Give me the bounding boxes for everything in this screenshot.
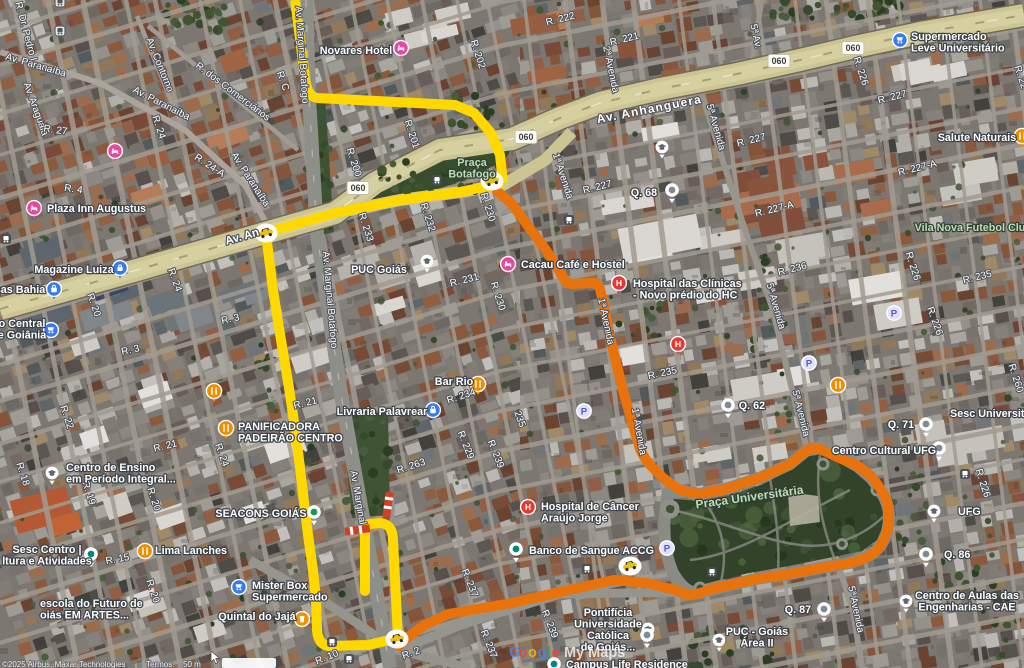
svg-text:o: o	[528, 645, 537, 661]
svg-text:PUC Goiás: PUC Goiás	[351, 264, 407, 276]
svg-text:H: H	[616, 278, 622, 288]
svg-text:Quintal do Jajá: Quintal do Jajá	[218, 611, 296, 623]
svg-text:Plaza Inn Augustus: Plaza Inn Augustus	[47, 203, 146, 215]
svg-text:Vila Nova Futebol Clu: Vila Nova Futebol Clu	[915, 222, 1024, 234]
svg-text:P: P	[581, 406, 588, 417]
svg-text:Q. 87: Q. 87	[785, 604, 811, 616]
svg-text:Lima Lanches: Lima Lanches	[155, 545, 227, 557]
svg-text:P: P	[806, 358, 813, 369]
svg-text:Bar Rio: Bar Rio	[435, 376, 474, 388]
svg-text:Centro Cultural UFG: Centro Cultural UFG	[832, 445, 936, 457]
svg-text:Área II: Área II	[740, 637, 773, 650]
svg-text:UFG: UFG	[958, 506, 981, 518]
svg-text:Centro de Aulas das: Centro de Aulas das	[915, 590, 1019, 602]
svg-text:l: l	[547, 645, 551, 661]
svg-text:060: 060	[351, 183, 366, 193]
svg-text:Engenharias - CAE: Engenharias - CAE	[918, 602, 1015, 614]
svg-text:Católica: Católica	[587, 630, 630, 642]
svg-text:Magazine Luiza: Magazine Luiza	[34, 264, 114, 276]
svg-text:©2025 Airbus, Maxar Technologi: ©2025 Airbus, Maxar Technologies	[2, 660, 126, 668]
svg-text:o: o	[519, 645, 528, 661]
svg-text:Q. 86: Q. 86	[944, 549, 970, 561]
svg-text:sas Bahia: sas Bahia	[0, 284, 46, 296]
svg-text:Banco de Sangue ACCG: Banco de Sangue ACCG	[529, 545, 654, 557]
svg-text:Q. 68: Q. 68	[631, 187, 657, 199]
svg-text:o Central: o Central	[0, 318, 45, 330]
svg-text:Supermercado: Supermercado	[911, 31, 987, 43]
svg-text:Botafogo: Botafogo	[448, 169, 496, 181]
svg-text:e Goiânia: e Goiânia	[0, 330, 47, 342]
svg-text:em Período Integral...: em Período Integral...	[66, 474, 176, 486]
svg-text:Sesc Centro |: Sesc Centro |	[12, 544, 81, 556]
svg-text:Praça: Praça	[457, 157, 487, 169]
svg-text:060: 060	[519, 132, 534, 142]
svg-text:Hospital das Clínicas: Hospital das Clínicas	[633, 278, 742, 290]
svg-text:Universidade: Universidade	[574, 619, 642, 631]
svg-text:Salute Naturais: Salute Naturais	[938, 132, 1017, 144]
svg-text:060: 060	[846, 43, 861, 53]
svg-text:H: H	[675, 339, 681, 349]
svg-text:P: P	[891, 308, 898, 319]
svg-text:Q. 71: Q. 71	[888, 419, 914, 431]
svg-text:Hospital de Câncer: Hospital de Câncer	[541, 501, 640, 513]
svg-text:50 m: 50 m	[183, 660, 201, 668]
svg-text:- Novo prédio do HC: - Novo prédio do HC	[633, 290, 738, 302]
svg-text:escola do Futuro de: escola do Futuro de	[40, 598, 143, 610]
svg-text:e: e	[552, 645, 560, 661]
svg-text:Sesc Universitár: Sesc Universitár	[950, 408, 1024, 420]
svg-text:Mister Box: Mister Box	[252, 580, 307, 592]
svg-text:Supermercado: Supermercado	[252, 592, 328, 604]
svg-text:Cacau Café e Hostel: Cacau Café e Hostel	[521, 259, 625, 271]
svg-text:SEACONS GOIÁS: SEACONS GOIÁS	[215, 507, 306, 520]
svg-text:Pontifícia: Pontifícia	[584, 607, 634, 619]
svg-text:ltura e Atividades: ltura e Atividades	[2, 556, 92, 568]
svg-text:Araújo Jorge: Araújo Jorge	[541, 513, 608, 525]
svg-text:Termos: Termos	[146, 660, 172, 668]
svg-text:PADEIRÃO CENTRO: PADEIRÃO CENTRO	[238, 432, 343, 445]
svg-text:Q. 62: Q. 62	[739, 400, 765, 412]
svg-text:060: 060	[772, 56, 787, 66]
svg-text:g: g	[538, 645, 547, 661]
svg-text:PUC - Goiás: PUC - Goiás	[726, 626, 788, 638]
svg-text:PANIFICADORA: PANIFICADORA	[238, 421, 320, 433]
svg-text:P: P	[664, 543, 671, 554]
svg-text:Centro de Ensino: Centro de Ensino	[66, 462, 156, 474]
svg-text:H: H	[525, 502, 531, 512]
svg-text:oiás EM ARTES...: oiás EM ARTES...	[40, 610, 129, 622]
svg-text:Leve Universitário: Leve Universitário	[911, 43, 1005, 55]
svg-text:My Maps: My Maps	[564, 645, 625, 661]
svg-text:Livraria Palavrear: Livraria Palavrear	[337, 406, 428, 418]
svg-text:Novares Hotel: Novares Hotel	[320, 45, 393, 57]
